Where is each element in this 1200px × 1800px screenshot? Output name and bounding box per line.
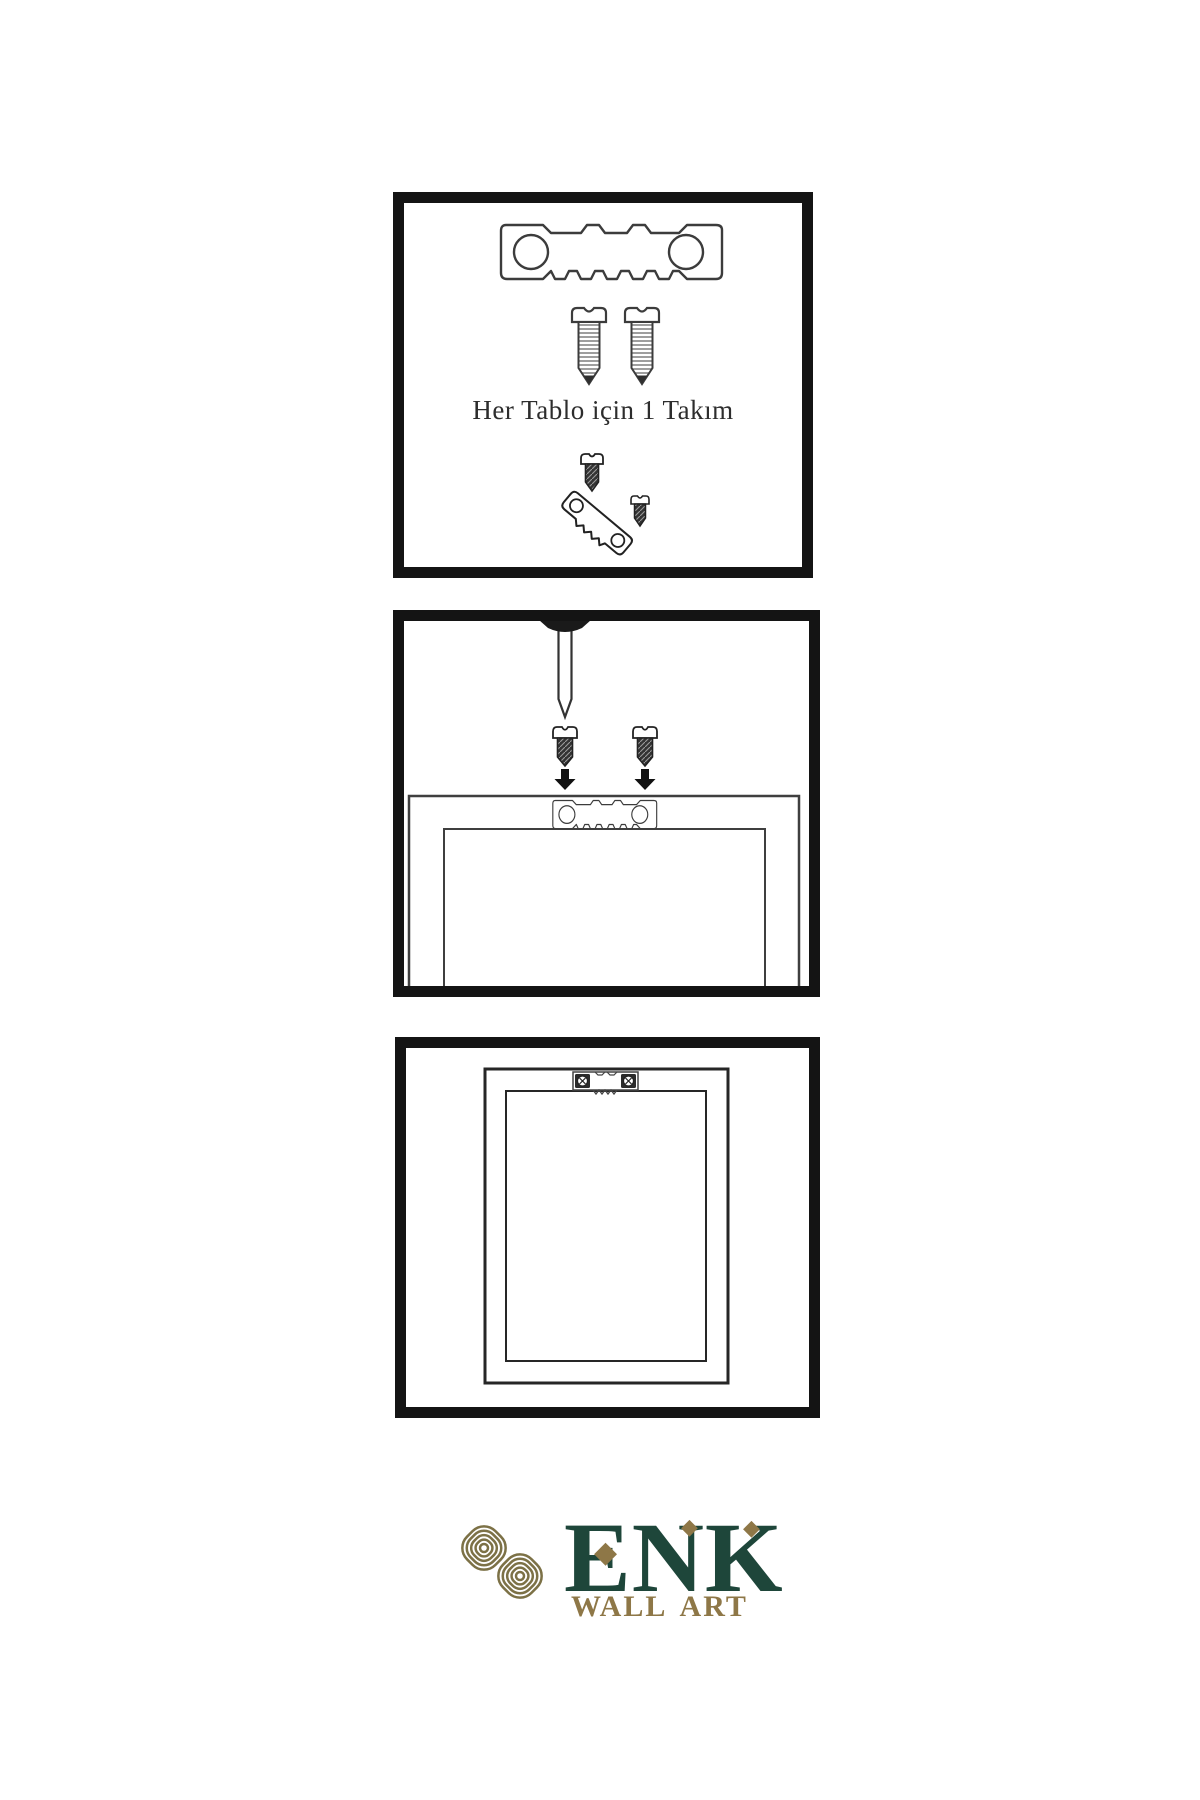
brand-subtitle: WALL ART	[571, 1592, 748, 1622]
phillips-screw-head-icon	[578, 1076, 588, 1086]
knot-logo-icon	[440, 1500, 564, 1624]
arrow-down-icon	[635, 769, 656, 790]
dark-screw-icon	[631, 496, 649, 526]
screw-icon	[625, 308, 659, 384]
arrow-down-icon	[555, 769, 576, 790]
nail-icon	[539, 621, 591, 717]
instruction-sheet: Her Tablo için 1 Takım	[0, 0, 1200, 1800]
step3-illustration	[406, 1048, 809, 1407]
step1-illustration	[404, 203, 802, 567]
dark-screw-icon	[581, 454, 603, 491]
screw-icon	[572, 308, 606, 384]
dark-screw-icon	[553, 727, 577, 766]
dark-screw-icon	[633, 727, 657, 766]
diamond-icon: ◆	[743, 1518, 760, 1540]
picture-frame-icon	[506, 1091, 706, 1361]
step1-panel	[393, 192, 813, 578]
sawtooth-hanger-icon	[573, 1072, 638, 1094]
step2-panel	[393, 610, 820, 997]
sawtooth-hanger-icon	[501, 225, 722, 279]
step1-caption: Her Tablo için 1 Takım	[393, 395, 813, 426]
sawtooth-hanger-icon	[557, 490, 633, 560]
phillips-screw-head-icon	[624, 1076, 634, 1086]
step2-illustration	[404, 621, 809, 986]
diamond-icon: ◆	[594, 1538, 617, 1568]
step3-panel	[395, 1037, 820, 1418]
diamond-icon: ◆	[681, 1517, 698, 1539]
picture-frame-icon	[444, 829, 765, 986]
sawtooth-hanger-icon	[553, 801, 657, 829]
